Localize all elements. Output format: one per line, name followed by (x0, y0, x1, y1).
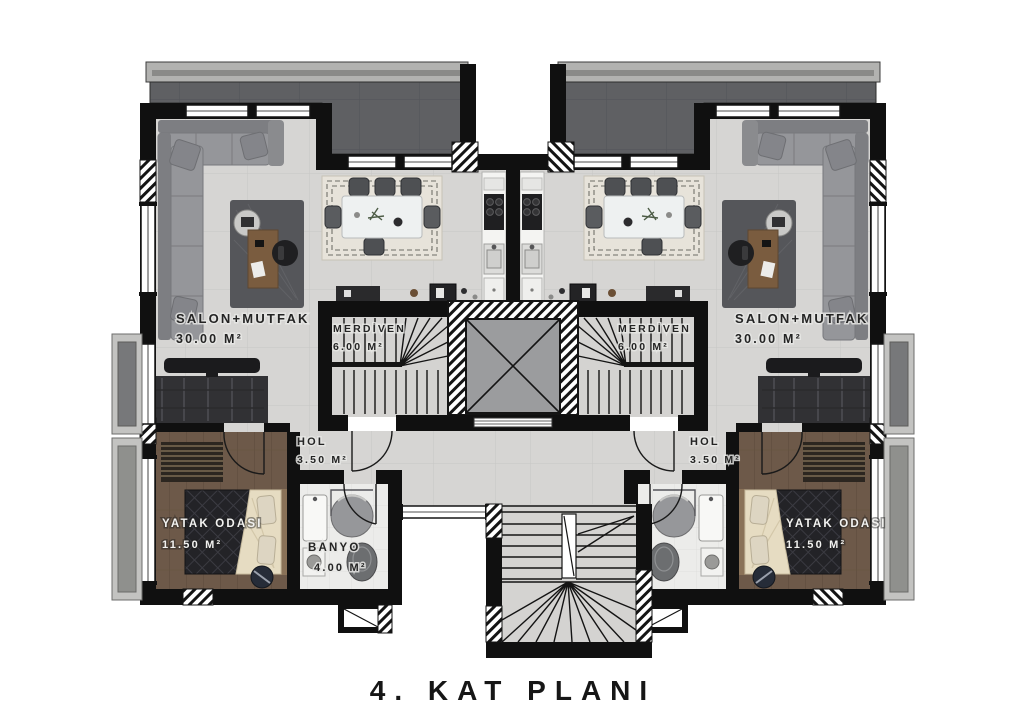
yatak-right-name: YATAK ODASI (786, 518, 887, 530)
yatak-left-area: 11.50 M² (162, 539, 222, 551)
hol-right-area: 3.50 M² (690, 454, 741, 466)
merdiven-right-area: 6.00 M² (618, 341, 669, 353)
floor-plan-page: SALON+MUTFAK 30.00 M² SALON+MUTFAK 30.00… (0, 0, 1024, 724)
salon-right-area: 30.00 M² (735, 332, 802, 346)
floor-plan-canvas: SALON+MUTFAK 30.00 M² SALON+MUTFAK 30.00… (0, 0, 1024, 724)
merdiven-right-name: MERDİVEN (618, 322, 691, 335)
merdiven-left-name: MERDİVEN (333, 322, 406, 335)
hol-left-area: 3.50 M² (297, 454, 348, 466)
bottom-staircase (486, 504, 652, 658)
plan-title: 4. KAT PLANI (370, 675, 656, 706)
merdiven-left-area: 6.00 M² (333, 341, 384, 353)
yatak-right-area: 11.50 M² (786, 539, 846, 551)
salon-right-name: SALON+MUTFAK (735, 311, 869, 326)
banyo-name: BANYO (308, 542, 361, 554)
hol-left-name: HOL (297, 436, 327, 448)
elevator (448, 301, 578, 431)
salon-left-area: 30.00 M² (176, 332, 243, 346)
salon-left-name: SALON+MUTFAK (176, 311, 310, 326)
hol-right-name: HOL (690, 436, 720, 448)
yatak-left-name: YATAK ODASI (162, 518, 263, 530)
banyo-area: 4.00 M² (314, 562, 367, 574)
